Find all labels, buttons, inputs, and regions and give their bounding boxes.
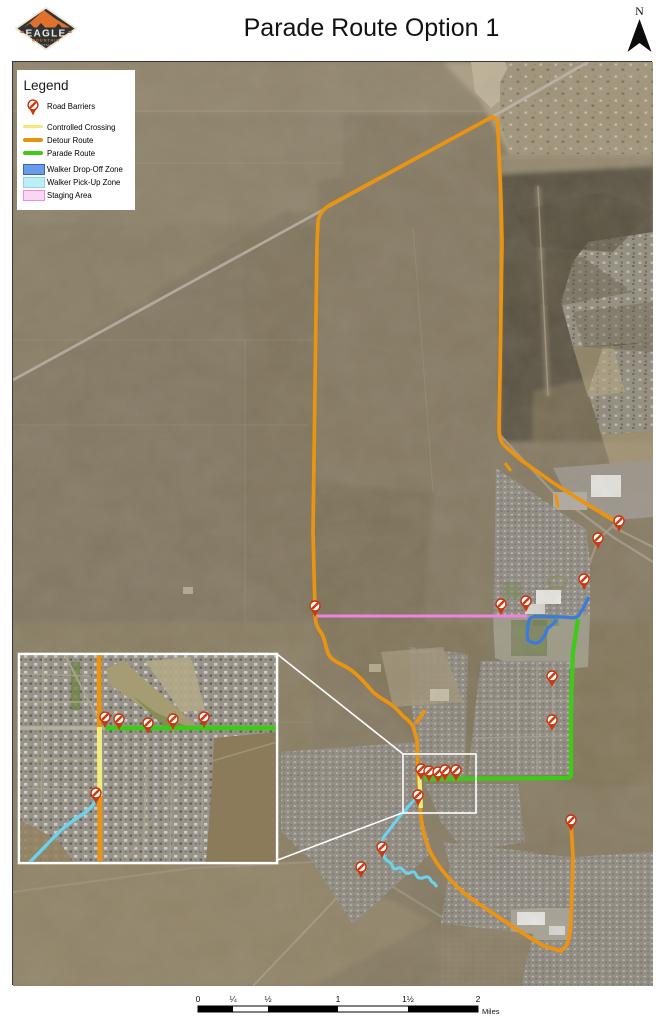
svg-text:1½: 1½ [402,994,414,1004]
svg-text:½: ½ [264,994,271,1004]
svg-text:1: 1 [336,994,341,1004]
svg-text:MOUNTAIN: MOUNTAIN [32,38,60,42]
svg-text:UTAH: UTAH [41,43,52,47]
svg-text:¼: ¼ [229,994,237,1004]
svg-text:N: N [635,4,644,18]
svg-text:Miles: Miles [482,1007,500,1016]
svg-text:0: 0 [196,994,201,1004]
svg-text:2: 2 [476,994,481,1004]
